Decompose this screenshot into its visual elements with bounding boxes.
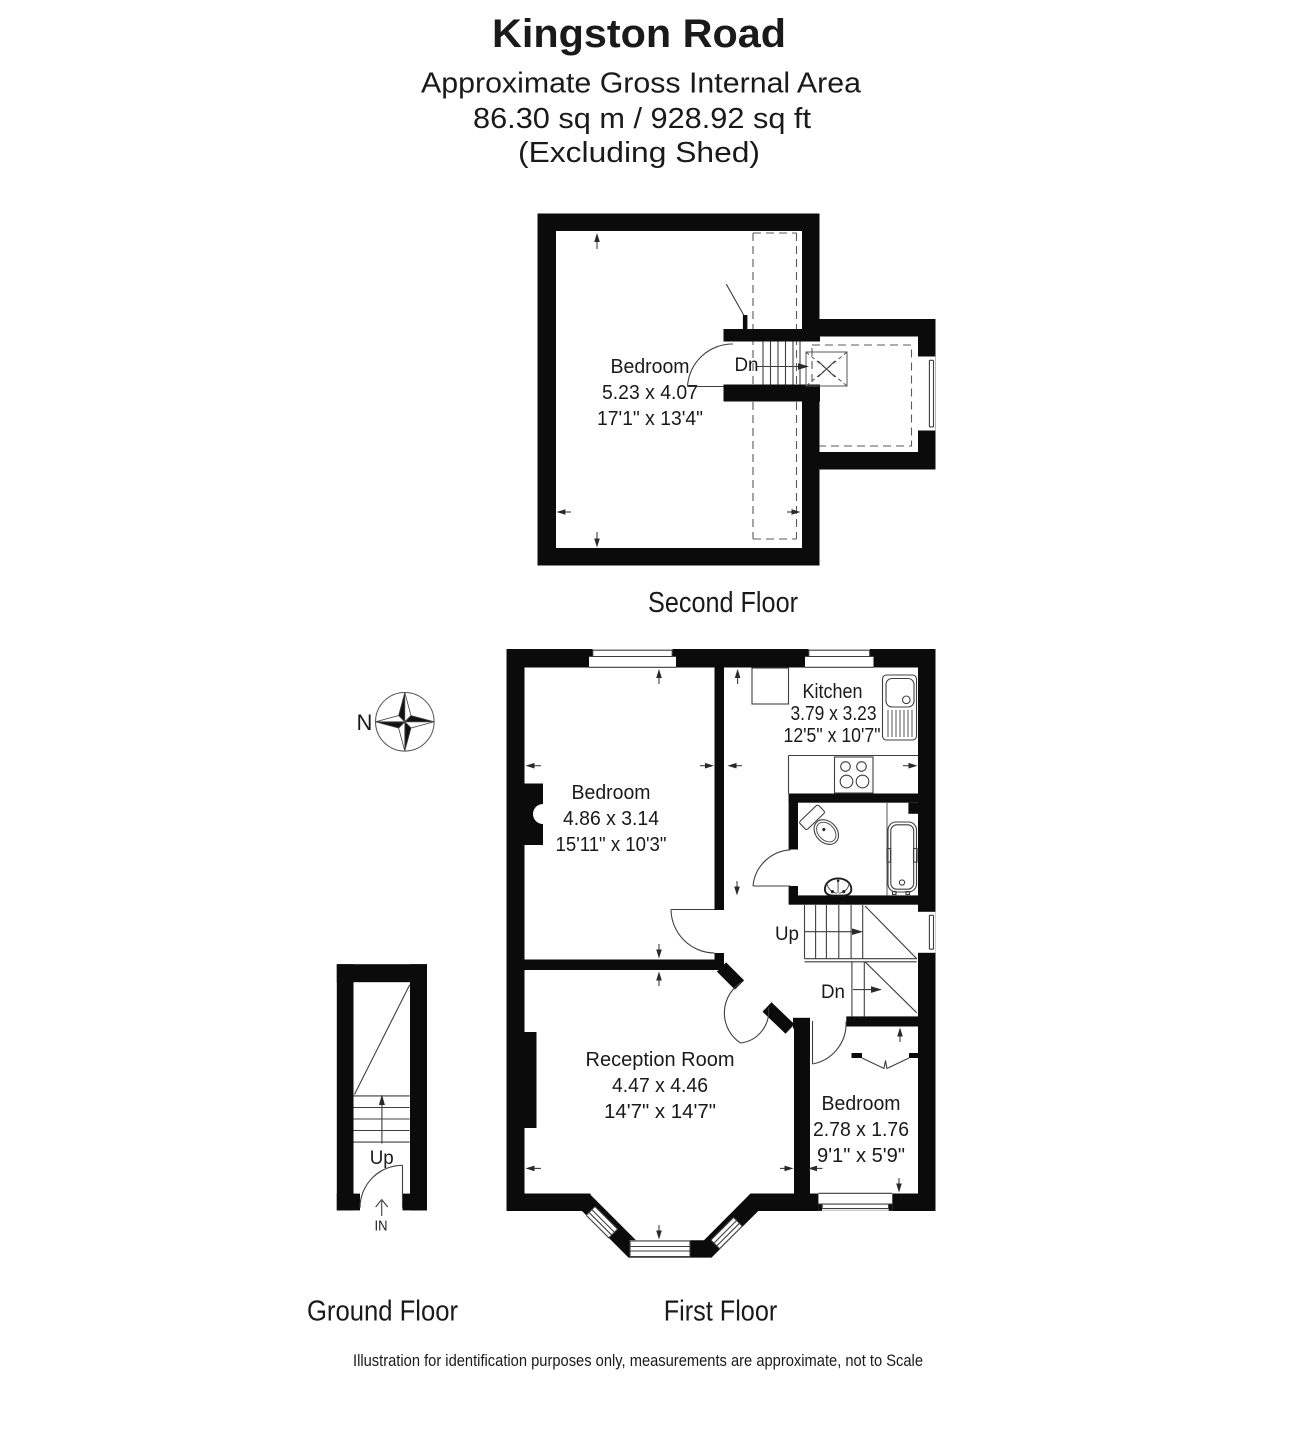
svg-text:Bedroom: Bedroom: [611, 356, 690, 378]
svg-text:4.86 x 3.14: 4.86 x 3.14: [563, 808, 659, 830]
svg-text:12'5" x 10'7": 12'5" x 10'7": [784, 725, 881, 747]
svg-text:(Excluding Shed): (Excluding Shed): [518, 137, 760, 169]
svg-text:Kitchen: Kitchen: [803, 681, 863, 703]
svg-text:5.23 x 4.07: 5.23 x 4.07: [602, 382, 698, 404]
svg-text:Dn: Dn: [821, 982, 845, 1003]
svg-text:Bedroom: Bedroom: [822, 1093, 901, 1115]
svg-text:N: N: [357, 710, 373, 735]
svg-text:Up: Up: [775, 924, 799, 945]
svg-text:9'1" x 5'9": 9'1" x 5'9": [817, 1145, 905, 1167]
svg-text:3.79 x 3.23: 3.79 x 3.23: [791, 703, 877, 725]
svg-text:86.30 sq m / 928.92 sq ft: 86.30 sq m / 928.92 sq ft: [473, 103, 811, 135]
svg-text:Dn: Dn: [735, 355, 759, 376]
svg-text:IN: IN: [375, 1218, 388, 1235]
svg-text:Kingston Road: Kingston Road: [492, 12, 786, 56]
svg-text:Reception Room: Reception Room: [586, 1049, 735, 1071]
svg-text:4.47 x 4.46: 4.47 x 4.46: [612, 1075, 708, 1097]
svg-text:15'11" x 10'3": 15'11" x 10'3": [556, 834, 667, 856]
svg-text:Second Floor: Second Floor: [648, 587, 798, 619]
svg-text:Bedroom: Bedroom: [572, 782, 651, 804]
svg-text:2.78 x 1.76: 2.78 x 1.76: [813, 1119, 909, 1141]
svg-text:Ground Floor: Ground Floor: [307, 1296, 458, 1328]
svg-text:First Floor: First Floor: [664, 1296, 778, 1328]
svg-text:Up: Up: [370, 1148, 394, 1169]
svg-text:17'1" x 13'4": 17'1" x 13'4": [597, 408, 703, 430]
svg-text:Illustration for identificatio: Illustration for identification purposes…: [353, 1351, 923, 1370]
svg-text:14'7" x 14'7": 14'7" x 14'7": [604, 1101, 716, 1123]
svg-text:Approximate Gross Internal Are: Approximate Gross Internal Area: [421, 68, 862, 100]
